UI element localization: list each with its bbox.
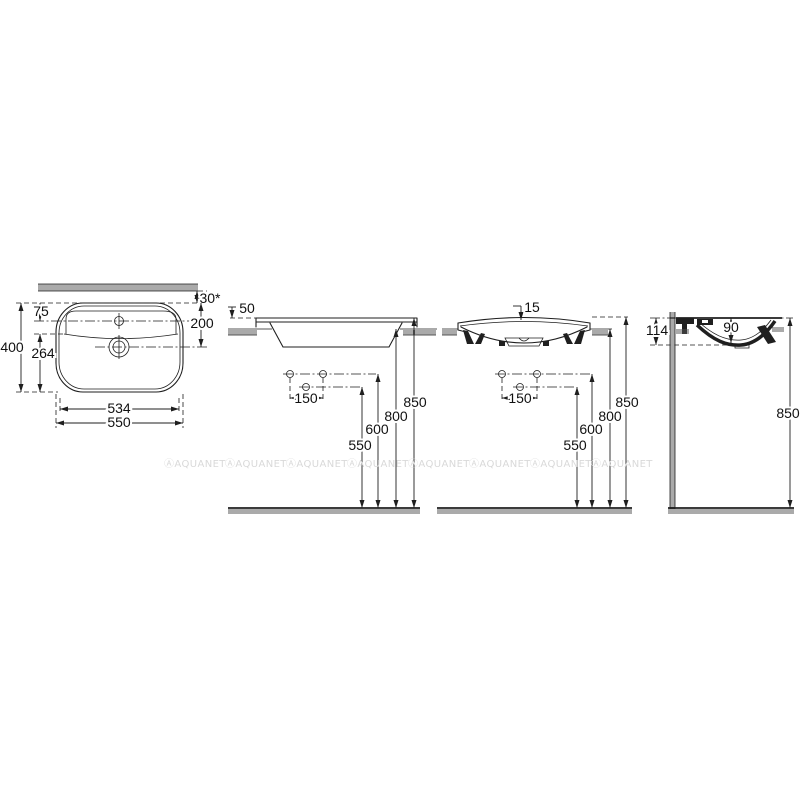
front-dim-label-15: 15 (524, 299, 540, 315)
plan-dim-label-264: 264 (31, 345, 55, 361)
side-dim-label-50: 50 (239, 300, 255, 316)
side-dim-label-850: 850 (403, 394, 427, 410)
section-dim-label-90: 90 (723, 319, 739, 335)
watermark-text: ⒶAQUANET (530, 458, 592, 470)
front-floor-hatch (437, 509, 632, 514)
wall-section-view: 114 90 850 (646, 312, 800, 514)
front-drain-side-left (499, 341, 505, 346)
section-dim-label-114: 114 (646, 322, 669, 338)
section-counter-hatch-right (772, 327, 784, 332)
section-dim-label-850: 850 (776, 405, 800, 421)
side-dim-label-550: 550 (348, 437, 372, 453)
watermark-text: ⒶAQUANET (286, 458, 348, 470)
front-counter-hatch-right (592, 330, 608, 335)
plan-view: 400 75 264 30* 200 534 550 (0, 284, 221, 430)
section-counter-hatch-left (676, 329, 689, 334)
watermark-row: ⒶAQUANET ⒶAQUANET ⒶAQUANET ⒶAQUANET ⒶAQU… (164, 458, 653, 470)
front-counter-hatch-left (442, 330, 457, 335)
plan-basin-inner-rim (59, 306, 180, 389)
side-rim (256, 318, 417, 327)
watermark-text: ⒶAQUANET (408, 458, 470, 470)
plan-dim-label-400: 400 (0, 339, 24, 355)
plan-tap-deck (66, 311, 176, 334)
side-counter-hatch-right (403, 330, 436, 335)
technical-drawing-page: 400 75 264 30* 200 534 550 50 (0, 0, 800, 800)
front-rim-endcaps (458, 323, 590, 332)
watermark-text: ⒶAQUANET (225, 458, 287, 470)
watermark-text: ⒶAQUANET (164, 458, 226, 470)
side-counter-hatch-left (228, 330, 257, 335)
plan-dim-label-75: 75 (33, 303, 49, 319)
plan-wall-strip (38, 284, 198, 291)
front-rim-inner (460, 322, 588, 327)
side-elevation-view: 50 150 550 600 800 850 (228, 300, 437, 514)
front-elevation-view: 15 150 550 600 800 850 (437, 299, 639, 514)
front-dim-label-550: 550 (563, 437, 587, 453)
front-dim-label-150: 150 (508, 390, 532, 406)
plan-dim-label-200: 200 (190, 315, 214, 331)
front-drain-side-right (543, 341, 549, 346)
side-dim-label-150: 150 (294, 390, 318, 406)
section-tap-boss-slot (702, 320, 708, 323)
washbasin-drawing: 400 75 264 30* 200 534 550 50 (0, 0, 800, 800)
front-dim-label-800: 800 (598, 408, 622, 424)
plan-dim-label-550: 550 (107, 414, 131, 430)
section-floor-hatch (668, 509, 794, 514)
plan-deck-ledge-line (64, 334, 178, 339)
front-dim-label-850: 850 (615, 394, 639, 410)
watermark-text: ⒶAQUANET (347, 458, 409, 470)
side-basin-body (270, 323, 402, 347)
section-wall-hatch (670, 312, 675, 509)
side-dim-label-800: 800 (384, 408, 408, 424)
watermark-text: ⒶAQUANET (591, 458, 653, 470)
front-rim-top (458, 318, 590, 324)
watermark-text: ⒶAQUANET (469, 458, 531, 470)
plan-dim-label-30: 30* (199, 290, 221, 306)
side-floor-hatch (228, 509, 420, 514)
